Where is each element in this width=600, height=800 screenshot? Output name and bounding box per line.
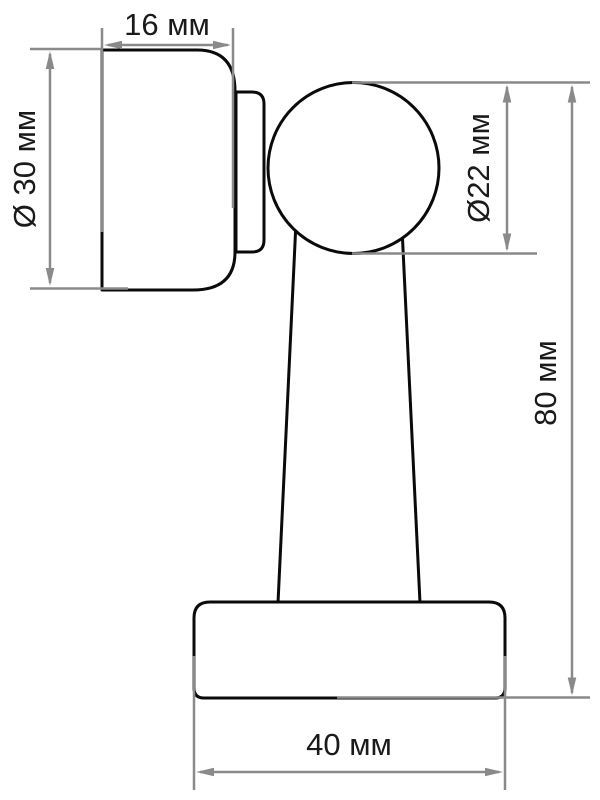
- arrowhead-down-icon: [46, 268, 55, 286]
- label-cap-diameter: Ø 30 мм: [7, 110, 42, 228]
- stem-left-edge: [278, 222, 296, 603]
- arrowhead-down-icon: [568, 678, 577, 696]
- arrowhead-up-icon: [568, 85, 577, 103]
- arrowhead-right-icon: [485, 768, 503, 777]
- label-ball-diameter: Ø22 мм: [461, 113, 496, 223]
- arrowhead-left-icon: [196, 768, 214, 777]
- label-cap-width: 16 мм: [124, 7, 210, 42]
- magnet-pad-outline: [236, 92, 264, 252]
- label-base-width: 40 мм: [306, 727, 392, 762]
- arrowhead-right-icon: [213, 41, 231, 50]
- arrowhead-up-icon: [503, 85, 512, 103]
- base-outline: [194, 602, 505, 698]
- magnet-cap-outline: [102, 50, 235, 290]
- arrowhead-up-icon: [46, 51, 55, 69]
- arrowhead-left-icon: [104, 41, 122, 50]
- stem-right-edge: [402, 228, 420, 603]
- ball-outline: [268, 83, 439, 254]
- label-total-height: 80 мм: [528, 340, 563, 426]
- door-stopper-dimension-drawing: 16 мм Ø 30 мм Ø22 мм 80 мм 40 мм: [0, 0, 600, 800]
- technical-drawing-page: 16 мм Ø 30 мм Ø22 мм 80 мм 40 мм: [0, 0, 600, 800]
- arrowhead-down-icon: [503, 234, 512, 252]
- object-outlines: [102, 50, 505, 698]
